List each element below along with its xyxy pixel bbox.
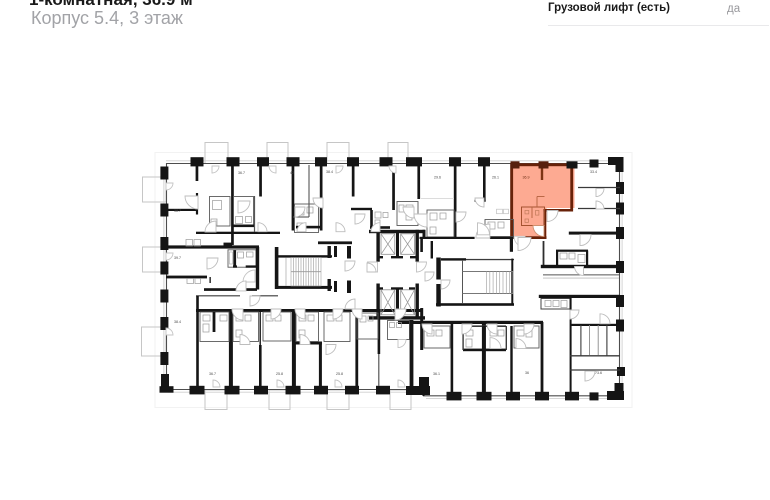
svg-text:33.4: 33.4 <box>590 170 597 174</box>
svg-text:36: 36 <box>525 371 529 375</box>
svg-text:25.8: 25.8 <box>336 372 343 376</box>
svg-text:25.8: 25.8 <box>276 372 283 376</box>
svg-text:38.4: 38.4 <box>326 170 333 174</box>
svg-text:29.6: 29.6 <box>434 176 441 180</box>
svg-text:36.9: 36.9 <box>523 176 530 180</box>
svg-text:73.6: 73.6 <box>595 371 602 375</box>
svg-text:38.7: 38.7 <box>174 209 181 213</box>
svg-text:26.1: 26.1 <box>492 176 499 180</box>
svg-text:36.7: 36.7 <box>209 372 216 376</box>
svg-text:42: 42 <box>290 171 294 175</box>
svg-text:36.1: 36.1 <box>433 372 440 376</box>
svg-text:36.7: 36.7 <box>238 171 245 175</box>
svg-text:39.7: 39.7 <box>174 256 181 260</box>
svg-text:38.4: 38.4 <box>174 320 181 324</box>
